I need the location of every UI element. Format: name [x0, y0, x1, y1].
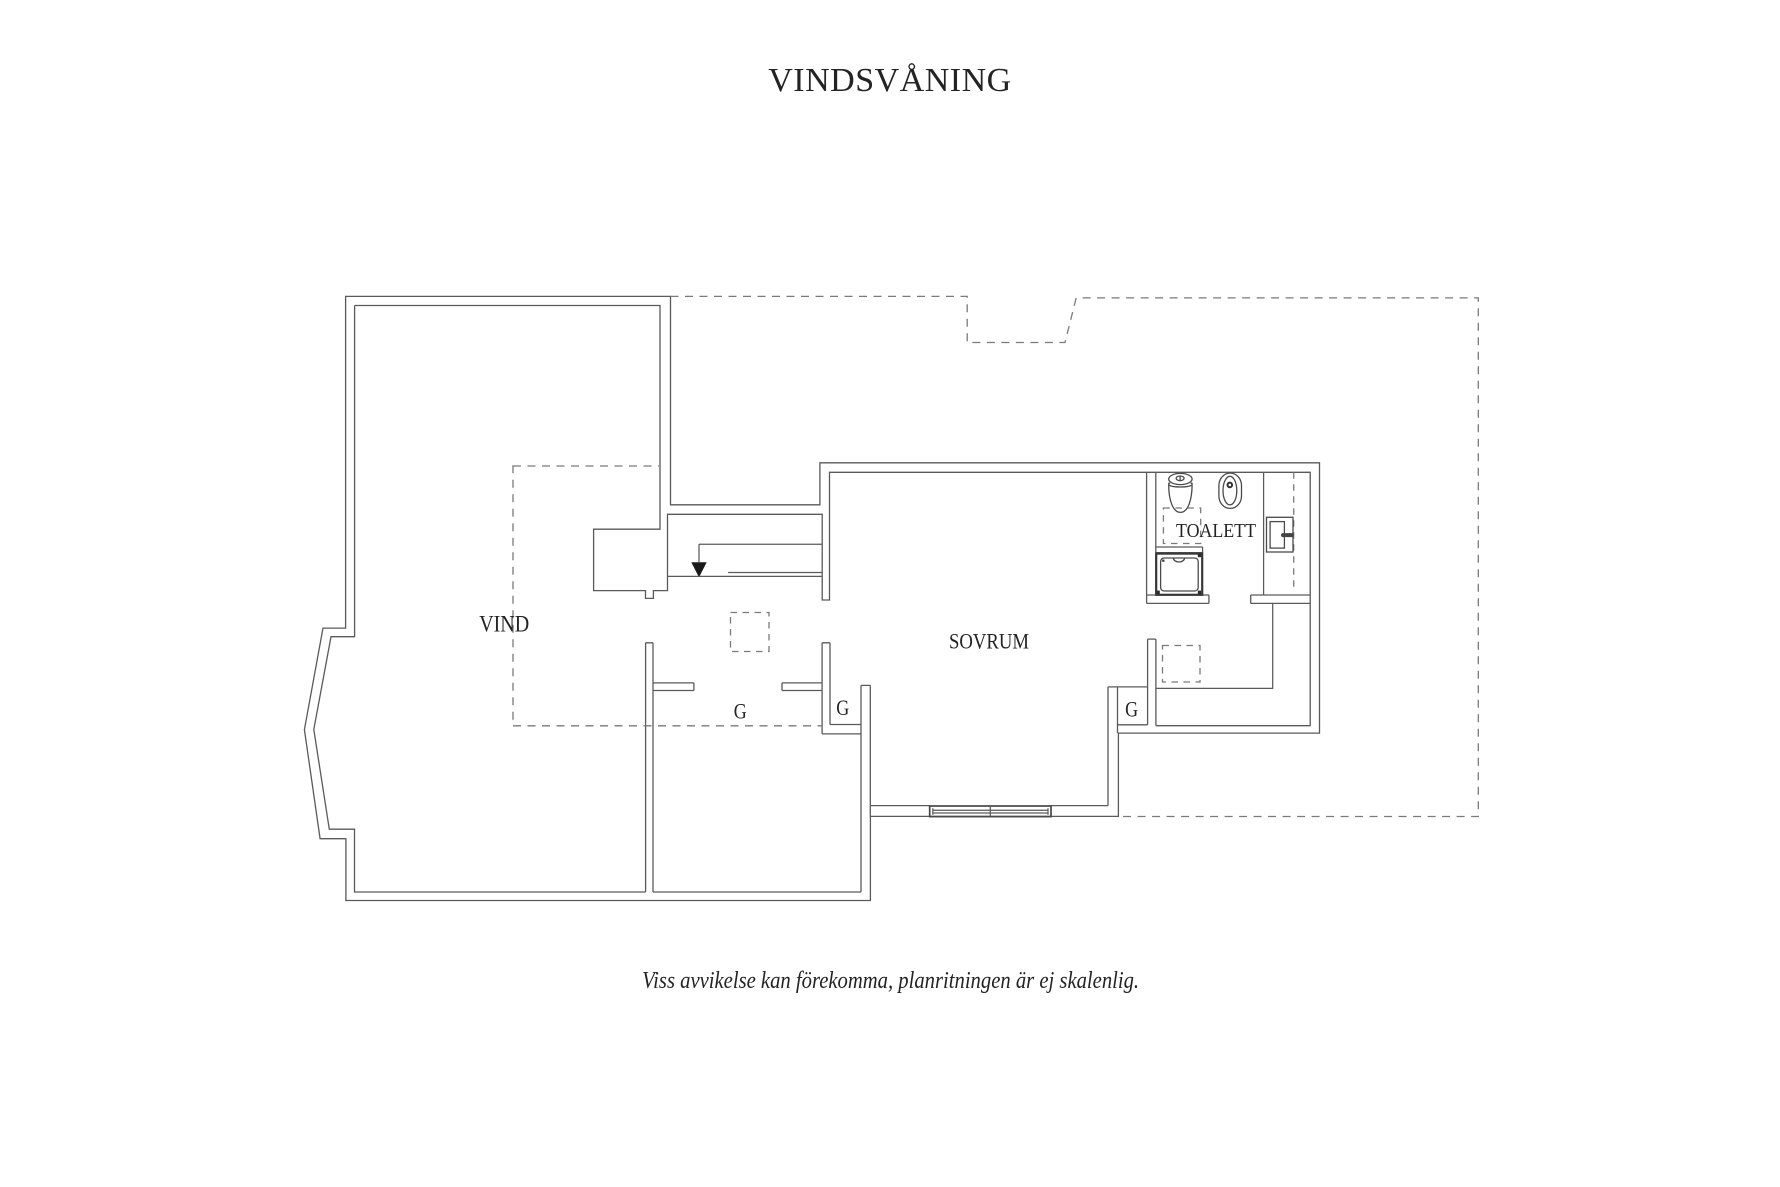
- svg-text:VIND: VIND: [479, 612, 529, 637]
- svg-text:G: G: [1125, 697, 1138, 722]
- svg-text:Viss avvikelse kan förekomma,: Viss avvikelse kan förekomma, planritnin…: [642, 967, 1139, 994]
- svg-text:SOVRUM: SOVRUM: [949, 629, 1029, 654]
- svg-text:VINDSVÅNING: VINDSVÅNING: [768, 62, 1011, 99]
- svg-text:G: G: [836, 695, 849, 720]
- svg-text:G: G: [734, 698, 747, 723]
- svg-text:TOALETT: TOALETT: [1176, 520, 1256, 542]
